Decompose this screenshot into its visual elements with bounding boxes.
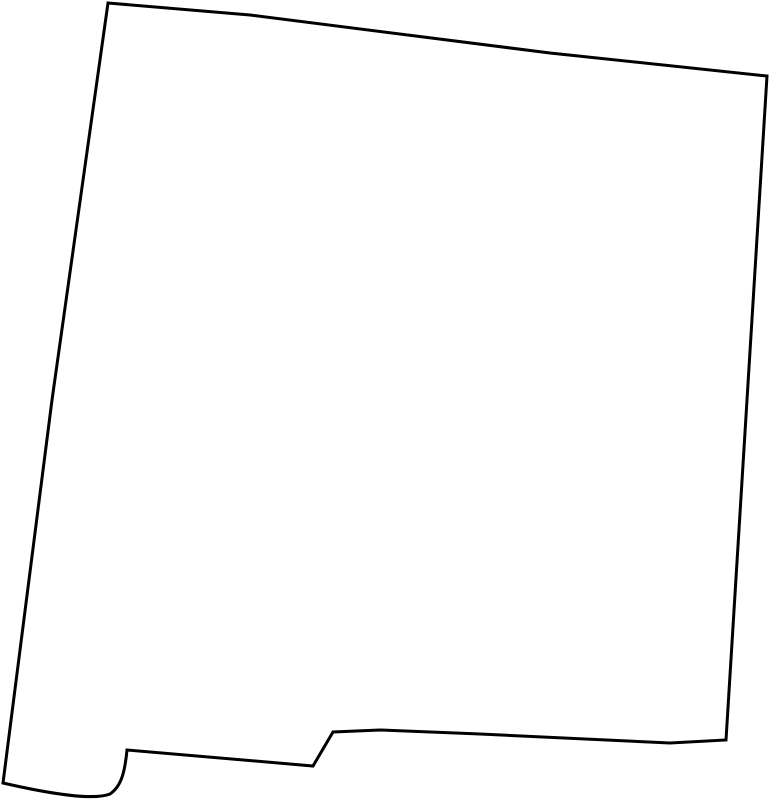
map-canvas bbox=[0, 0, 769, 800]
state-outline-svg bbox=[0, 0, 769, 800]
new-mexico-outline bbox=[3, 3, 767, 797]
